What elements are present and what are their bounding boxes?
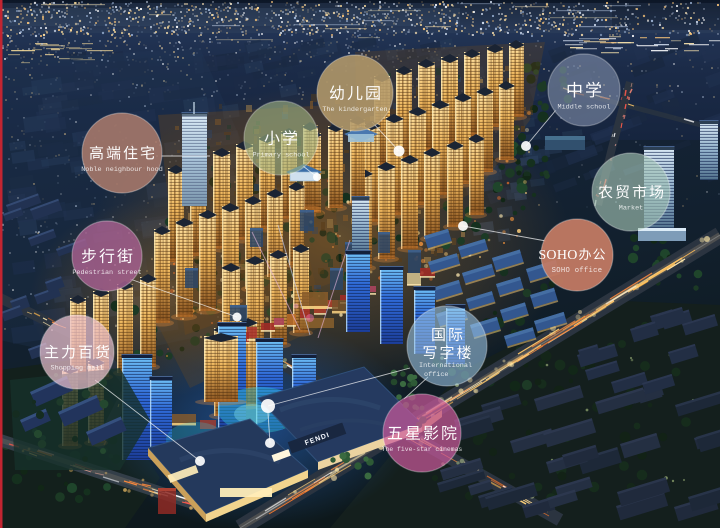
svg-text:Middle school: Middle school	[557, 103, 610, 111]
svg-text:SOHO: SOHO	[538, 248, 577, 263]
svg-text:International: International	[419, 362, 472, 370]
svg-text:Pedestrian street: Pedestrian street	[72, 269, 141, 277]
svg-text:office: office	[424, 371, 448, 379]
svg-text:Noble neighbour hood: Noble neighbour hood	[81, 166, 163, 174]
svg-text:Shopping mall: Shopping mall	[50, 364, 103, 372]
svg-text:The five-star cinemas: The five-star cinemas	[382, 446, 463, 453]
svg-text:SOHO office: SOHO office	[552, 267, 603, 275]
svg-text:The kindergarten: The kindergarten	[322, 106, 387, 114]
svg-text:Primary school: Primary school	[252, 151, 309, 159]
svg-text:Market: Market	[619, 204, 643, 212]
